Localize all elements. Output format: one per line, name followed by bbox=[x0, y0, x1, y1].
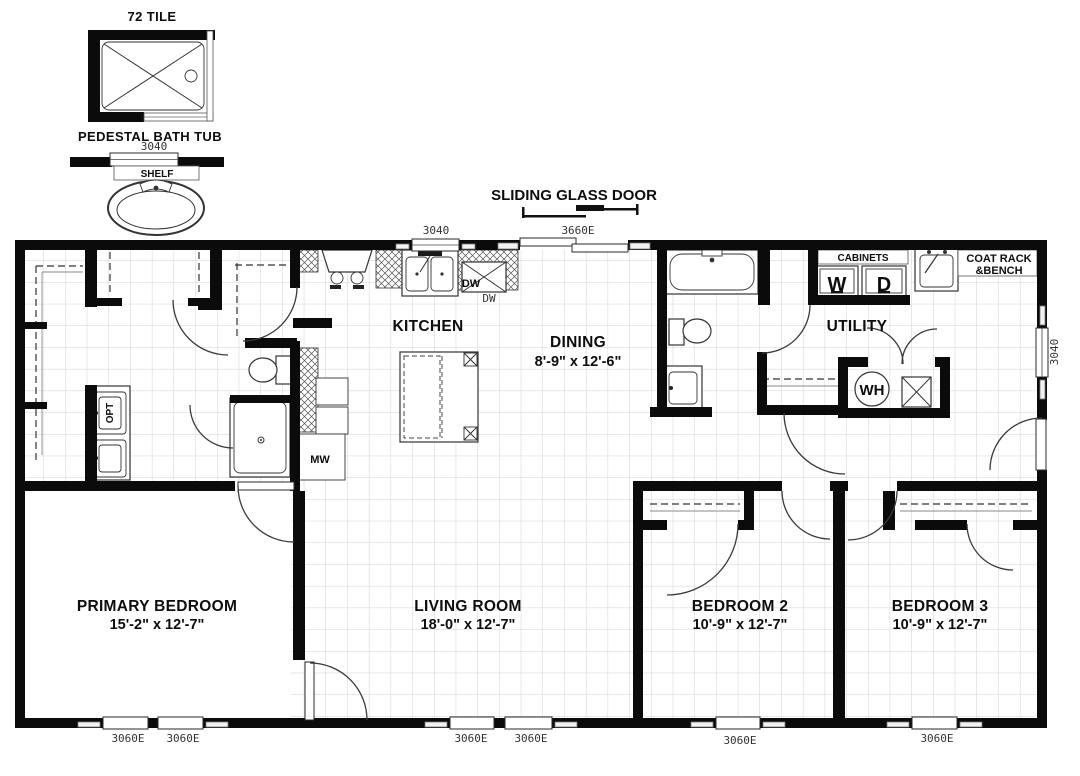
window-label-sliding: 3660E bbox=[561, 224, 594, 237]
kitchen-sink bbox=[402, 250, 458, 296]
room-label-bed3: BEDROOM 3 bbox=[892, 598, 989, 615]
water-heater-label: WH bbox=[860, 382, 885, 399]
room-dims-dining: 8'-9" x 12'-6" bbox=[535, 354, 622, 370]
window-label-b6: 3060E bbox=[920, 732, 953, 745]
sliding-door-callout-bracket bbox=[522, 204, 639, 218]
room-label-dining: DINING bbox=[550, 334, 606, 351]
room-dims-living: 18'-0" x 12'-7" bbox=[421, 617, 516, 633]
detail-72-tile-shower bbox=[88, 30, 215, 122]
window-label-b3: 3060E bbox=[454, 732, 487, 745]
window-label-right: 3040 bbox=[1048, 339, 1061, 366]
detail-pedestal-tub bbox=[108, 180, 204, 235]
room-label-living: LIVING ROOM bbox=[414, 598, 522, 615]
floorplan-drawing: 72 TILE PEDESTAL BATH TUB 3040 SHELF SLI… bbox=[0, 0, 1080, 776]
shelf-label: SHELF bbox=[141, 169, 174, 180]
hall-bath-sink bbox=[664, 366, 702, 410]
room-label-kitchen: KITCHEN bbox=[393, 318, 464, 335]
room-dims-primary: 15'-2" x 12'-7" bbox=[110, 617, 205, 633]
detail-window-label: 3040 bbox=[141, 140, 168, 153]
room-label-primary: PRIMARY BEDROOM bbox=[77, 598, 237, 615]
room-label-utility: UTILITY bbox=[827, 318, 888, 335]
washer-label: W bbox=[828, 274, 847, 296]
coat-rack-label-1: COAT RACK bbox=[966, 253, 1031, 265]
floorplan-page: 72 TILE PEDESTAL BATH TUB 3040 SHELF SLI… bbox=[0, 0, 1080, 776]
microwave-label: MW bbox=[310, 454, 330, 466]
primary-shower bbox=[230, 398, 290, 477]
room-label-bed2: BEDROOM 2 bbox=[692, 598, 789, 615]
detail-title: 72 TILE bbox=[127, 9, 176, 24]
optional-sink-label: OPT bbox=[105, 403, 116, 424]
window-label-kitchen-top: 3040 bbox=[423, 224, 450, 237]
cabinets-label: CABINETS bbox=[837, 253, 888, 264]
utility-pan bbox=[902, 377, 931, 407]
kitchen-island bbox=[400, 352, 478, 442]
utility-sink bbox=[915, 249, 958, 291]
sliding-door-callout: SLIDING GLASS DOOR bbox=[491, 187, 657, 204]
room-dims-bed2: 10'-9" x 12'-7" bbox=[693, 617, 788, 633]
window-label-b4: 3060E bbox=[514, 732, 547, 745]
window-label-b5: 3060E bbox=[723, 734, 756, 747]
hall-toilet bbox=[669, 319, 711, 345]
dishwasher-label-2: DW bbox=[482, 292, 496, 305]
dryer-label: D bbox=[877, 274, 891, 296]
room-dims-bed3: 10'-9" x 12'-7" bbox=[893, 617, 988, 633]
sliding-glass-door bbox=[498, 238, 650, 252]
window-label-b2: 3060E bbox=[166, 732, 199, 745]
window-label-b1: 3060E bbox=[111, 732, 144, 745]
hall-bathtub bbox=[666, 250, 758, 294]
primary-toilet bbox=[249, 356, 291, 384]
coat-rack-label-2: &BENCH bbox=[975, 265, 1022, 277]
dishwasher-label: DW bbox=[462, 278, 481, 290]
